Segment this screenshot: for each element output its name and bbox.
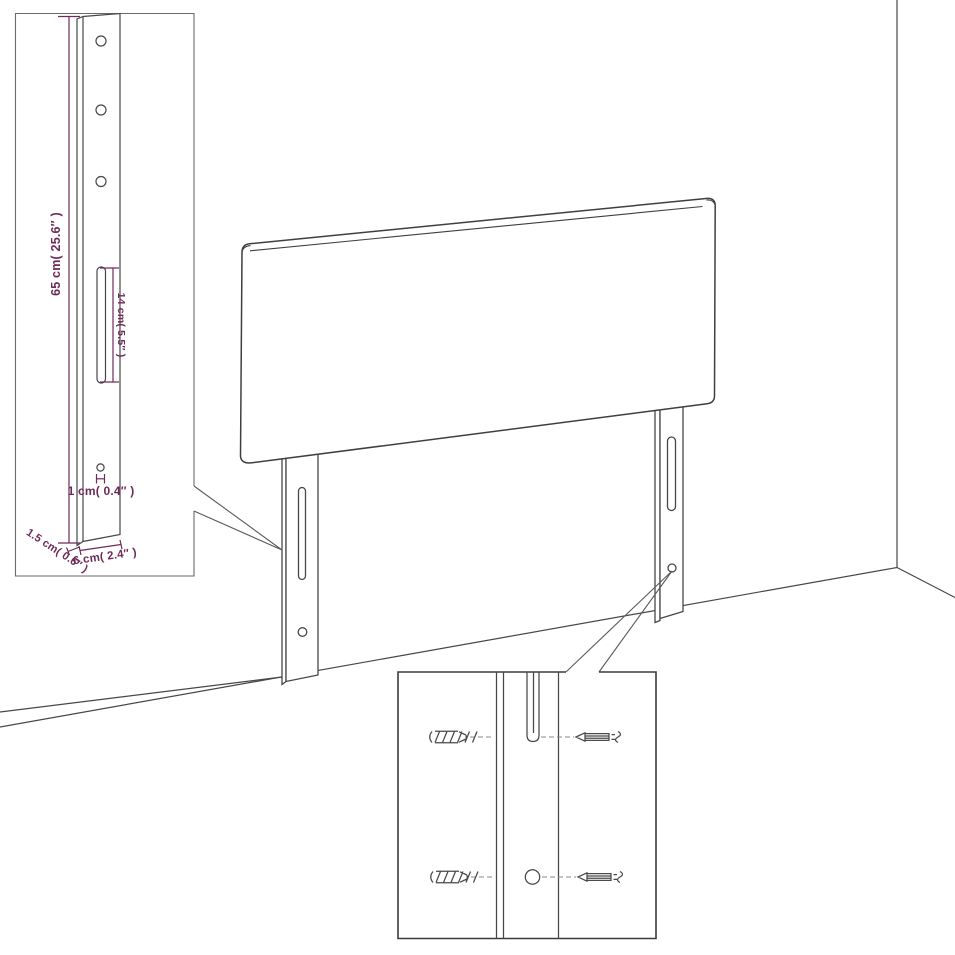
dimension-label-hole-diameter: 1 cm( 0.4″ ) — [68, 484, 135, 498]
dimension-diagram: 65 cm( 25.6″ ) 14 cm( 5.5″ ) 1 cm( 0.4″ … — [0, 0, 955, 955]
bracket-small-hole — [97, 464, 104, 471]
bracket-hole-2 — [96, 105, 106, 115]
dimension-annotations — [58, 17, 122, 556]
bracket-hole-1 — [96, 36, 106, 46]
dimension-label-slot-length: 14 cm( 5.5″ ) — [115, 293, 127, 358]
mounting-detail-inset — [398, 672, 656, 939]
bracket-hole-3 — [96, 177, 106, 187]
dimension-label-leg-height: 65 cm( 25.6″ ) — [49, 212, 63, 296]
headboard-panel — [241, 198, 716, 463]
bracket-slot — [97, 267, 106, 383]
left-leg — [282, 441, 318, 685]
callout-wedge-left — [194, 486, 282, 550]
wall-corner-line — [897, 0, 955, 598]
dimension-line-hole-diameter — [97, 474, 105, 484]
line-drawing — [0, 0, 955, 955]
